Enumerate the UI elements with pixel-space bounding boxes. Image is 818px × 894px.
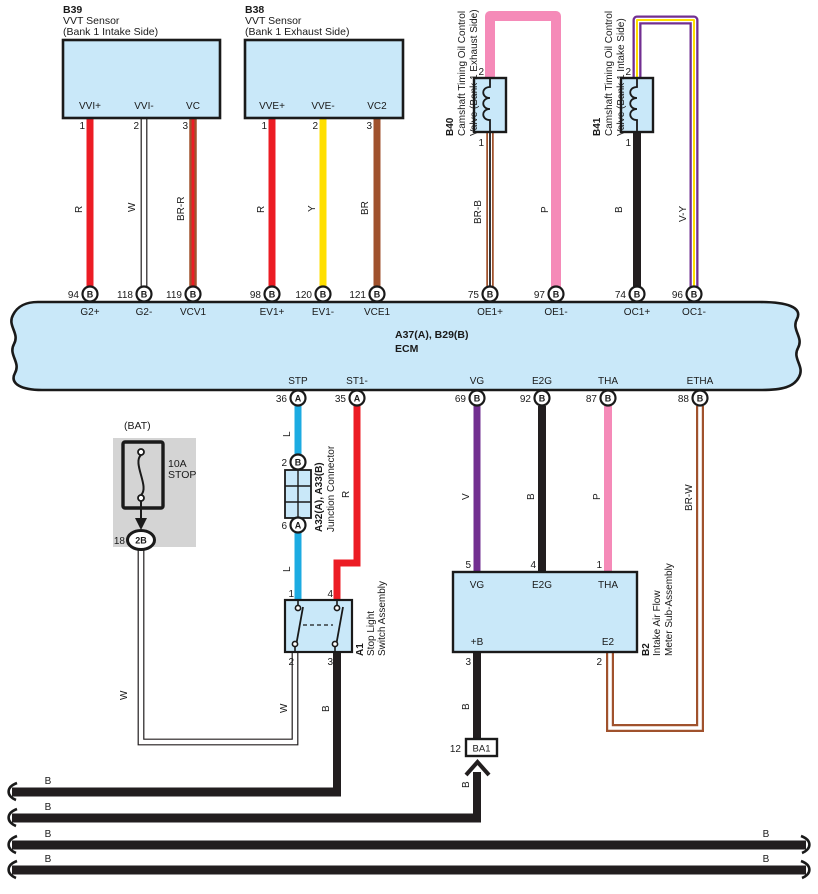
a1-code: A1 <box>355 643 366 656</box>
svg-text:12: 12 <box>450 744 462 755</box>
junction-connector-grid <box>285 470 311 518</box>
wire-label-br-vce1: BR <box>360 201 371 215</box>
svg-text:B: B <box>763 829 770 840</box>
svg-text:96: 96 <box>672 290 684 301</box>
ecm-code: A37(A), B29(B) <box>395 330 469 341</box>
b2-line2: Meter Sub-Assembly <box>664 563 675 656</box>
wire-brw-etha-inner <box>610 406 700 728</box>
svg-text:3: 3 <box>182 121 188 132</box>
b41-line2: Valve (Bank 1 Intake Side) <box>616 18 627 136</box>
junction-code: A32(A), A33(B) <box>314 462 325 532</box>
wire-label-b-sw3: B <box>321 705 332 712</box>
wire-label-p-oe1m: P <box>540 206 551 213</box>
wire-label-l-lower: L <box>282 566 293 572</box>
svg-text:97: 97 <box>534 290 546 301</box>
connector-ba1: BA1 12 <box>450 739 497 775</box>
svg-text:B: B <box>320 290 327 300</box>
wire-label-b-ba1: B <box>461 781 472 788</box>
svg-text:120: 120 <box>295 290 312 301</box>
svg-text:1: 1 <box>478 138 484 149</box>
svg-text:B: B <box>87 290 94 300</box>
wire-label-l-upper: L <box>282 431 293 437</box>
wiring-diagram: 2B 18 BA1 12 B 2 A 6 B94G2+ B118G2- B119… <box>0 0 818 894</box>
wire-label-r-st1: R <box>341 491 352 498</box>
wire-label-w-g2m: W <box>127 203 138 212</box>
wire-r-st1 <box>337 406 357 600</box>
svg-text:OE1-: OE1- <box>544 307 567 318</box>
svg-text:69: 69 <box>455 394 467 405</box>
svg-text:OC1-: OC1- <box>682 307 706 318</box>
svg-text:B: B <box>697 394 704 404</box>
svg-text:EV1-: EV1- <box>312 307 334 318</box>
svg-text:4: 4 <box>530 560 536 571</box>
svg-text:E2G: E2G <box>532 580 552 591</box>
svg-text:6: 6 <box>281 521 287 532</box>
svg-text:3: 3 <box>327 657 333 668</box>
svg-text:OC1+: OC1+ <box>624 307 651 318</box>
svg-text:THA: THA <box>598 376 618 387</box>
svg-text:+B: +B <box>471 637 484 648</box>
a1-line1: Stop Light <box>366 611 377 656</box>
wire-vy-oc1m-outer <box>637 20 694 288</box>
svg-text:B: B <box>374 290 381 300</box>
svg-text:2: 2 <box>288 657 294 668</box>
svg-text:A: A <box>295 394 302 404</box>
wire-brw-etha-outer <box>610 406 700 728</box>
svg-text:92: 92 <box>520 394 532 405</box>
wire-label-w-sw2: W <box>279 704 290 713</box>
svg-text:VC: VC <box>186 101 200 112</box>
svg-text:EV1+: EV1+ <box>260 307 285 318</box>
b38-sub: (Bank 1 Exhaust Side) <box>245 27 349 38</box>
svg-text:B: B <box>45 829 52 840</box>
junction-pin-bottom: A 6 <box>281 518 305 533</box>
svg-text:E2: E2 <box>602 637 615 648</box>
diagram-canvas: 2B 18 BA1 12 B 2 A 6 B94G2+ B118G2- B119… <box>0 0 818 894</box>
svg-text:B: B <box>605 394 612 404</box>
wire-w-fuse-outer <box>141 549 295 742</box>
svg-text:1: 1 <box>261 121 267 132</box>
svg-text:B: B <box>141 290 148 300</box>
svg-text:B: B <box>45 776 52 787</box>
svg-text:1: 1 <box>288 589 294 600</box>
fuse-bat-label: (BAT) <box>124 421 151 432</box>
svg-text:STP: STP <box>288 376 308 387</box>
b40-code: B40 <box>445 118 456 136</box>
svg-text:B: B <box>190 290 197 300</box>
svg-text:B: B <box>45 854 52 865</box>
svg-text:G2+: G2+ <box>80 307 99 318</box>
svg-text:OE1+: OE1+ <box>477 307 503 318</box>
wire-label-y-ev1m: Y <box>307 205 318 212</box>
svg-text:BA1: BA1 <box>473 744 491 755</box>
wire-label-w-fuse: W <box>119 691 130 700</box>
b40-line1: Camshaft Timing Oil Control <box>457 11 468 136</box>
svg-text:94: 94 <box>68 290 80 301</box>
svg-text:3: 3 <box>465 657 471 668</box>
svg-text:B: B <box>474 394 481 404</box>
wire-label-b-plusb: B <box>461 703 472 710</box>
b39-sub: (Bank 1 Intake Side) <box>63 27 158 38</box>
wire-vy-oc1m-mid <box>637 20 694 288</box>
b2-code: B2 <box>641 643 652 656</box>
svg-text:A: A <box>295 521 302 531</box>
wire-p-oe1m <box>490 16 556 288</box>
b41-code: B41 <box>592 118 603 136</box>
svg-text:ST1-: ST1- <box>346 376 368 387</box>
a1-line2: Switch Assembly <box>377 581 388 656</box>
svg-text:2: 2 <box>312 121 318 132</box>
svg-text:87: 87 <box>586 394 598 405</box>
svg-text:THA: THA <box>598 580 618 591</box>
wire-label-brr: BR-R <box>176 197 187 221</box>
svg-text:119: 119 <box>166 290 182 301</box>
svg-text:A: A <box>354 394 361 404</box>
wire-label-v-vg: V <box>461 493 472 500</box>
svg-text:4: 4 <box>327 589 333 600</box>
svg-text:2: 2 <box>133 121 139 132</box>
junction-pin-top: B 2 <box>281 455 305 470</box>
svg-text:2: 2 <box>281 458 287 469</box>
svg-text:98: 98 <box>250 290 262 301</box>
ecm-name: ECM <box>395 344 418 355</box>
svg-text:G2-: G2- <box>136 307 153 318</box>
svg-text:VVI+: VVI+ <box>79 101 101 112</box>
svg-text:5: 5 <box>465 560 471 571</box>
svg-text:2: 2 <box>596 657 602 668</box>
svg-text:E2G: E2G <box>532 376 552 387</box>
svg-text:1: 1 <box>79 121 85 132</box>
svg-text:2B: 2B <box>135 536 147 546</box>
svg-text:B: B <box>539 394 546 404</box>
svg-text:VVE-: VVE- <box>311 101 334 112</box>
svg-text:VVE+: VVE+ <box>259 101 285 112</box>
svg-text:VC2: VC2 <box>367 101 387 112</box>
wire-label-r-ev1p: R <box>256 206 267 213</box>
wire-label-p-tha: P <box>592 493 603 500</box>
b41-line1: Camshaft Timing Oil Control <box>604 11 615 136</box>
svg-text:35: 35 <box>335 394 347 405</box>
svg-text:1: 1 <box>596 560 602 571</box>
junction-name: Junction Connector <box>326 446 337 532</box>
wire-w-fuse-inner <box>141 549 295 742</box>
svg-text:118: 118 <box>117 290 133 301</box>
b40-line2: Valve (Bank 1 Exhaust Side) <box>469 9 480 136</box>
svg-text:18: 18 <box>114 536 126 547</box>
fuse-name: STOP <box>168 470 196 481</box>
svg-text:B: B <box>634 290 641 300</box>
battery-shade-box <box>113 438 196 547</box>
svg-text:B: B <box>487 290 494 300</box>
svg-text:75: 75 <box>468 290 480 301</box>
svg-text:VG: VG <box>470 376 485 387</box>
svg-text:1: 1 <box>625 138 631 149</box>
svg-text:B: B <box>269 290 276 300</box>
svg-text:VVI-: VVI- <box>134 101 153 112</box>
wire-label-r-g2p: R <box>74 206 85 213</box>
svg-text:B: B <box>691 290 698 300</box>
svg-text:B: B <box>45 802 52 813</box>
svg-text:VCE1: VCE1 <box>364 307 391 318</box>
svg-text:3: 3 <box>366 121 372 132</box>
wire-label-b-oc1p: B <box>614 206 625 213</box>
svg-text:VCV1: VCV1 <box>180 307 207 318</box>
svg-text:36: 36 <box>276 394 288 405</box>
wire-label-vy: V-Y <box>678 206 689 222</box>
wire-label-brw: BR-W <box>684 484 695 511</box>
svg-text:VG: VG <box>470 580 485 591</box>
wire-label-b-e2g: B <box>526 493 537 500</box>
svg-text:121: 121 <box>349 290 366 301</box>
svg-text:74: 74 <box>615 290 627 301</box>
svg-text:B: B <box>553 290 560 300</box>
b2-line1: Intake Air Flow <box>652 590 663 656</box>
wire-vy-oc1m-stripe <box>637 20 694 288</box>
wire-label-brb: BR-B <box>473 200 484 224</box>
svg-text:B: B <box>763 854 770 865</box>
svg-text:ETHA: ETHA <box>687 376 714 387</box>
svg-text:B: B <box>295 458 302 468</box>
svg-text:88: 88 <box>678 394 690 405</box>
